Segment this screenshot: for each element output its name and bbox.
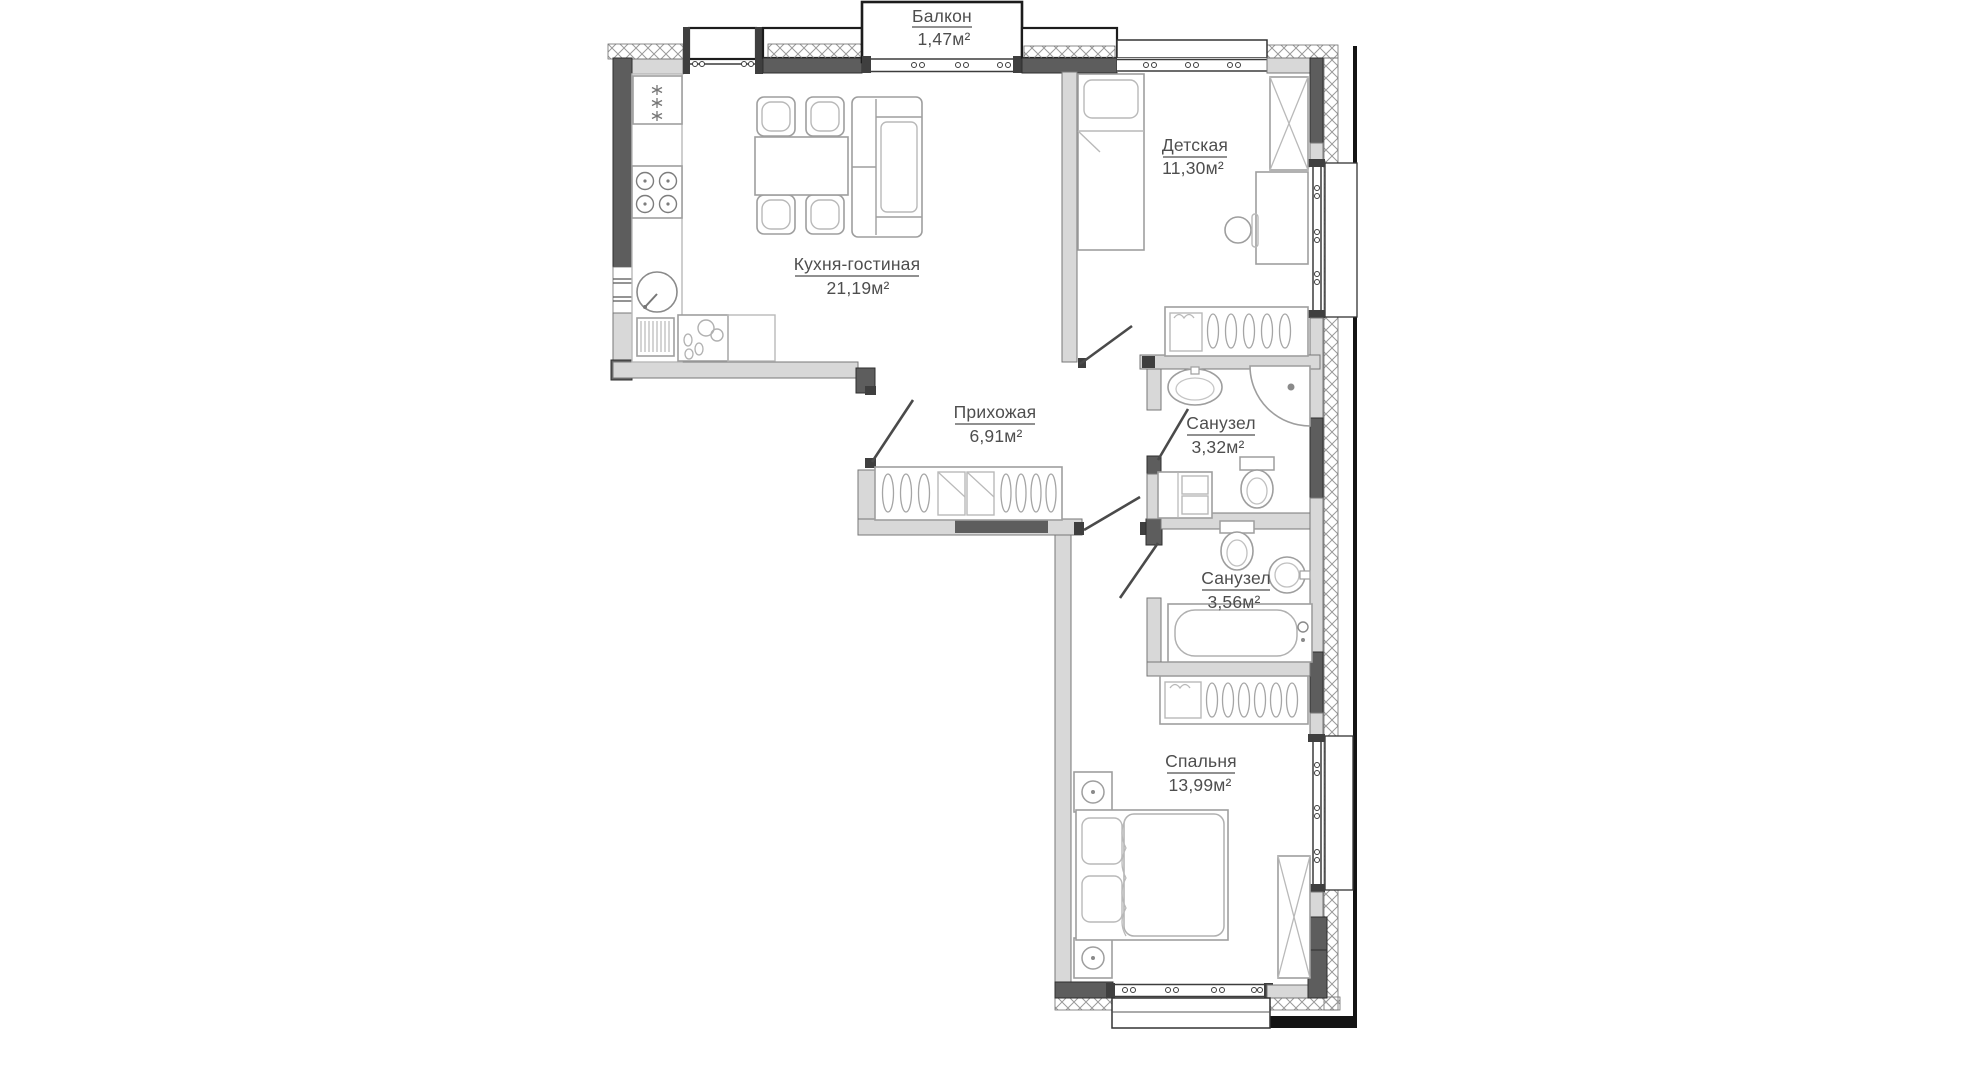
entry-door-leaf [872,400,913,462]
window-sill [628,59,683,74]
kitchen-bottom-wall [613,362,858,378]
room-area: 13,99м² [1168,775,1231,795]
bathtub-icon [1168,604,1312,662]
toilet-icon [1240,457,1274,508]
room-label-children: Детская 11,30м² [1162,135,1228,178]
shower-icon [1250,366,1310,426]
room-label-hallway: Прихожая 6,91м² [954,402,1037,446]
sofa [852,97,922,237]
door-post [1146,519,1162,545]
room-label-kitchen-living: Кухня-гостиная 21,19м² [794,254,921,298]
floor-plan-page: Балкон 1,47м² Кухня-гостиная 21,19м² Дет… [0,0,1980,1080]
room-area: 11,30м² [1162,158,1224,178]
fridge-icon [633,76,682,124]
kitchen-cabinet [728,315,775,361]
bedroom-side-window [1308,734,1353,892]
left-exterior-wall [611,58,632,380]
wardrobe-icon [1278,856,1310,978]
bay-window-1 [683,27,763,74]
room-name: Балкон [912,6,972,26]
bay-window-2 [763,28,862,73]
washer-icon [637,318,674,356]
kitchen-fixtures [632,74,922,362]
room-name: Детская [1162,135,1228,155]
nightstand-icon [1074,772,1112,812]
room-name: Кухня-гостиная [794,254,921,274]
room-label-bathroom-2: Санузел 3,56м² [1201,568,1271,612]
room-name: Санузел [1201,568,1271,588]
children-door-leaf [1080,326,1132,364]
stove-icon [632,166,682,218]
toilet-icon [1220,521,1254,570]
desk-chair [1225,214,1258,247]
room-name: Спальня [1165,751,1237,771]
bathroom2-door-leaf [1120,543,1158,598]
wall-duct [613,267,632,313]
room-area: 6,91м² [969,426,1022,446]
room-label-bedroom: Спальня 13,99м² [1165,751,1237,795]
floor-plan-canvas: Балкон 1,47м² Кухня-гостиная 21,19м² Дет… [0,0,1980,1080]
room-label-balcony: Балкон 1,47м² [912,6,972,49]
dining-table-group [755,97,848,234]
room-name: Санузел [1186,413,1256,433]
wardrobe-icon [1270,77,1308,170]
room-label-bathroom-1: Санузел 3,32м² [1186,413,1256,457]
bedroom-door-leaf [1084,497,1140,530]
bath-sink-icon [1269,557,1310,593]
bay-window-3 [1022,28,1117,73]
bath-sink-icon [1168,367,1222,405]
bathroom2-bottom-wall [1147,662,1310,676]
children-fixtures [1078,74,1308,356]
double-bed [1076,810,1228,940]
closet-hangers [1160,676,1308,724]
room-area: 1,47м² [917,29,970,49]
bedroom-bottom-window [1106,983,1273,998]
kitchen-sink-icon [637,272,677,312]
room-area: 21,19м² [826,278,889,298]
children-side-window [1308,159,1357,318]
room-area: 3,32м² [1191,437,1244,457]
room-name: Прихожая [954,402,1037,422]
bathroom-cabinet [1158,472,1212,518]
bedroom-left-wall [1055,535,1071,997]
dishwasher-icon [678,315,728,361]
hallway-closet [875,467,1062,520]
room-area: 3,56м² [1207,592,1260,612]
nightstand-icon [1074,938,1112,978]
bathroom1-door-leaf [1158,409,1188,460]
desk [1256,172,1308,264]
single-bed [1078,74,1144,250]
closet-hangers [1165,307,1308,356]
bedroom-fixtures [1074,676,1310,978]
bedroom-bottom-bay [1112,998,1270,1028]
bathroom1-left-wall [1147,369,1161,410]
kitchen-children-partition [1062,72,1077,362]
dining-table [755,137,848,195]
children-top-window [1117,40,1267,72]
window-sill [1267,58,1310,73]
